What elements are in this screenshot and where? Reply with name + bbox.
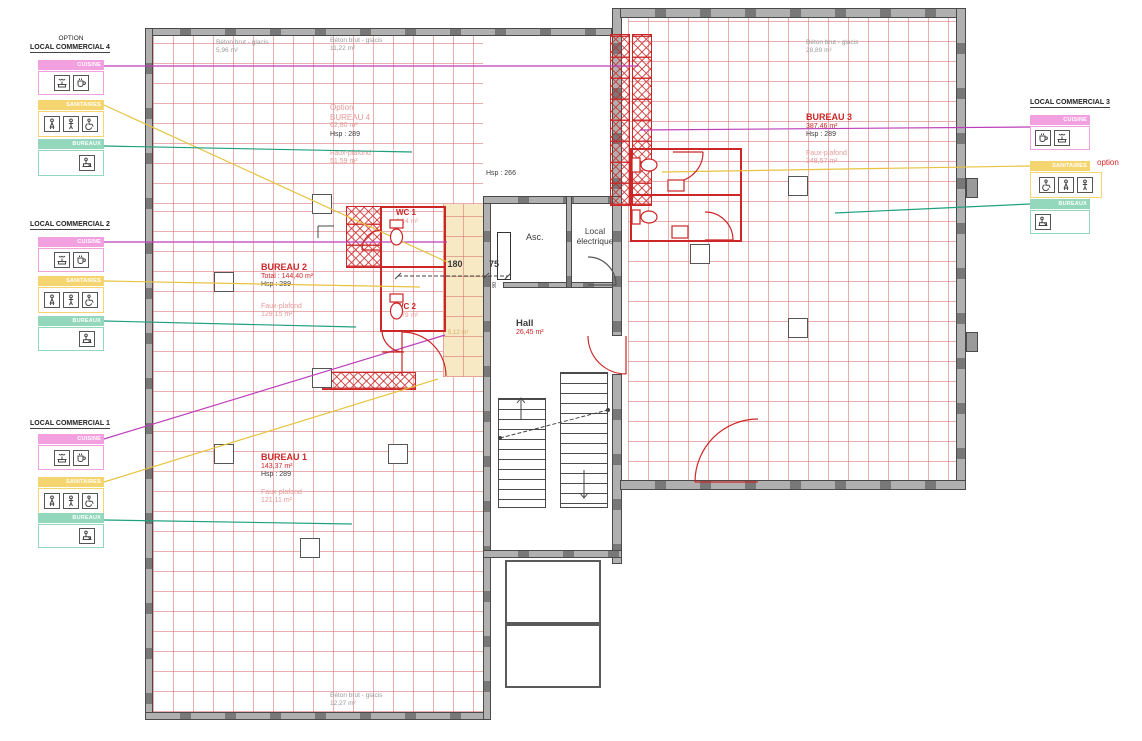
desk-person-icon — [79, 528, 95, 544]
wall-segment — [483, 196, 491, 720]
room-label-bureau4: Option BUREAU 4 62,80 m² Hsp : 289 — [330, 103, 370, 139]
dim-180: 180 — [440, 259, 470, 270]
wc-divider — [380, 266, 446, 268]
legend-lc3-title: LOCAL COMMERCIAL 3 — [1030, 99, 1110, 108]
duct-shaft — [632, 34, 652, 206]
duct-shaft — [610, 34, 630, 206]
structural-column — [788, 176, 808, 196]
legend-lc3-cuisine-icons — [1030, 126, 1090, 150]
legend-lc1-bureaux-bar: BUREAUX — [38, 513, 104, 523]
wall-segment — [620, 480, 966, 490]
wall-segment — [145, 28, 612, 36]
wall-segment — [612, 374, 622, 564]
coffee-machine-icon — [73, 450, 89, 466]
man-icon — [63, 292, 79, 308]
room-label-wc1: WC 1 3,14 m² — [396, 208, 418, 225]
man-icon — [63, 493, 79, 509]
service-room-upper — [505, 560, 601, 624]
coffee-machine-icon — [1035, 130, 1051, 146]
room-label-wc2: WC 2 2,79 m² — [396, 302, 418, 319]
legend-lc3-sanitaires-bar: SANITAIRES — [1030, 161, 1090, 171]
accessible-icon — [82, 493, 98, 509]
legend-lc2-bureaux-bar: BUREAUX — [38, 316, 104, 326]
structural-column — [214, 444, 234, 464]
legend-lc4-sanitaires-icons — [38, 111, 104, 137]
structural-column — [312, 368, 332, 388]
duct-shaft — [346, 206, 382, 268]
structural-column — [388, 444, 408, 464]
legend-lc4-cuisine-bar: CUISINE — [38, 60, 104, 70]
grid-area-bureau4 — [153, 36, 483, 204]
legend-lc4-bureaux-bar: BUREAUX — [38, 139, 104, 149]
wall-segment — [483, 550, 622, 558]
legend-lc4-title: LOCAL COMMERCIAL 4 — [30, 44, 110, 53]
legend-lc1-cuisine-icons — [38, 445, 104, 470]
legend-lc1-bureaux-icons — [38, 524, 104, 548]
legend-lc4-bureaux-icons — [38, 150, 104, 176]
legend-lc3-bureaux-bar: BUREAUX — [1030, 199, 1090, 209]
room-label-bureau2: BUREAU 2 Total : 144,40 m² Hsp : 289 — [261, 262, 313, 290]
desk-person-icon — [79, 155, 95, 171]
room-label-hall: Hall 26,45 m² — [516, 318, 544, 338]
legend-lc2-sanitaires-bar: SANITAIRES — [38, 276, 104, 286]
legend-lc2-cuisine-bar: CUISINE — [38, 237, 104, 247]
coffee-machine-icon — [73, 75, 89, 91]
legend-lc2-title: LOCAL COMMERCIAL 2 — [30, 221, 110, 230]
sink-icon — [54, 450, 70, 466]
hsp-note: Hsp : 266 — [486, 170, 516, 178]
woman-icon — [44, 116, 60, 132]
coffee-machine-icon — [73, 252, 89, 268]
legend-lc3-bureaux-icons — [1030, 210, 1090, 234]
dim-90: 90 — [492, 282, 499, 288]
legend-lc1-title: LOCAL COMMERCIAL 1 — [30, 420, 110, 429]
legend-lc4-pretitle: OPTION — [38, 35, 104, 42]
duct-shaft — [322, 372, 416, 390]
beton-label-4: Béton brut - glacis12,27 m² — [330, 692, 382, 708]
structural-column — [690, 244, 710, 264]
structural-column — [312, 194, 332, 214]
wall-segment — [483, 196, 622, 204]
legend-lc3-cuisine-bar: CUISINE — [1030, 115, 1090, 125]
legend-lc4-cuisine-icons — [38, 71, 104, 95]
sink-icon — [54, 75, 70, 91]
dim-75: 75 — [484, 259, 504, 270]
legend-lc2-sanitaires-icons — [38, 287, 104, 313]
legend-lc4-sanitaires-bar: SANITAIRES — [38, 100, 104, 110]
wall-pier — [966, 178, 978, 198]
stair-flight-right — [560, 372, 608, 508]
beton-label-2: Béton brut - glacis11,22 m² — [330, 37, 382, 53]
fp-label-bureau3: Faux-plafond348,57 m² — [806, 150, 847, 167]
stair-flight-left — [498, 398, 546, 508]
woman-icon — [44, 292, 60, 308]
legend-lc1-sanitaires-bar: SANITAIRES — [38, 477, 104, 487]
woman-icon — [1058, 177, 1074, 193]
wall-segment — [145, 712, 491, 720]
woman-icon — [44, 493, 60, 509]
room-label-local-electrique: Local électrique — [564, 226, 626, 246]
sink-icon — [1054, 130, 1070, 146]
legend-lc3-sanitaires-icons — [1030, 172, 1102, 198]
sink-icon — [54, 252, 70, 268]
legend-lc2-cuisine-icons — [38, 248, 104, 272]
legend-lc1-sanitaires-icons — [38, 488, 104, 514]
floor-plan-canvas: Béton brut - glacis5,96 m² Béton brut - … — [0, 0, 1142, 741]
legend-lc2-bureaux-icons — [38, 327, 104, 351]
option-note: option — [1097, 158, 1119, 167]
structural-column — [300, 538, 320, 558]
room-label-bureau3: BUREAU 3 387,46 m² Hsp : 289 — [806, 112, 852, 140]
fp-label-bureau1: Faux-plafond121,11 m² — [261, 489, 302, 506]
desk-person-icon — [79, 331, 95, 347]
wall-segment — [956, 8, 966, 490]
accessible-icon — [1039, 177, 1055, 193]
man-icon — [63, 116, 79, 132]
wall-segment — [620, 8, 966, 18]
beton-label-3: Béton brut - glacis28,89 m² — [806, 39, 858, 55]
wall-pier — [966, 332, 978, 352]
wall-segment — [145, 28, 153, 720]
structural-column — [788, 318, 808, 338]
legend-lc1-cuisine-bar: CUISINE — [38, 434, 104, 444]
desk-person-icon — [1035, 214, 1051, 230]
room-label-asc: Asc. — [526, 232, 544, 243]
corridor-highlight — [443, 204, 487, 377]
beton-label-1: Béton brut - glacis5,96 m² — [216, 39, 268, 55]
fp-label-bureau4: Faux-plafond51,59 m² — [330, 150, 371, 167]
structural-column — [214, 272, 234, 292]
room-label-bureau1: BUREAU 1 143,37 m² Hsp : 289 — [261, 452, 307, 480]
wall-segment — [503, 282, 622, 288]
corridor-area-label: 5,12 m² — [448, 330, 468, 337]
service-room-lower — [505, 624, 601, 688]
wall-segment — [612, 196, 622, 336]
fp-label-bureau2: Faux-plafond129,15 m² — [261, 303, 302, 320]
accessible-icon — [82, 116, 98, 132]
man-icon — [1077, 177, 1093, 193]
grid-area-bureau3 — [628, 16, 958, 482]
elevator-door-detail — [497, 232, 511, 280]
accessible-icon — [82, 292, 98, 308]
